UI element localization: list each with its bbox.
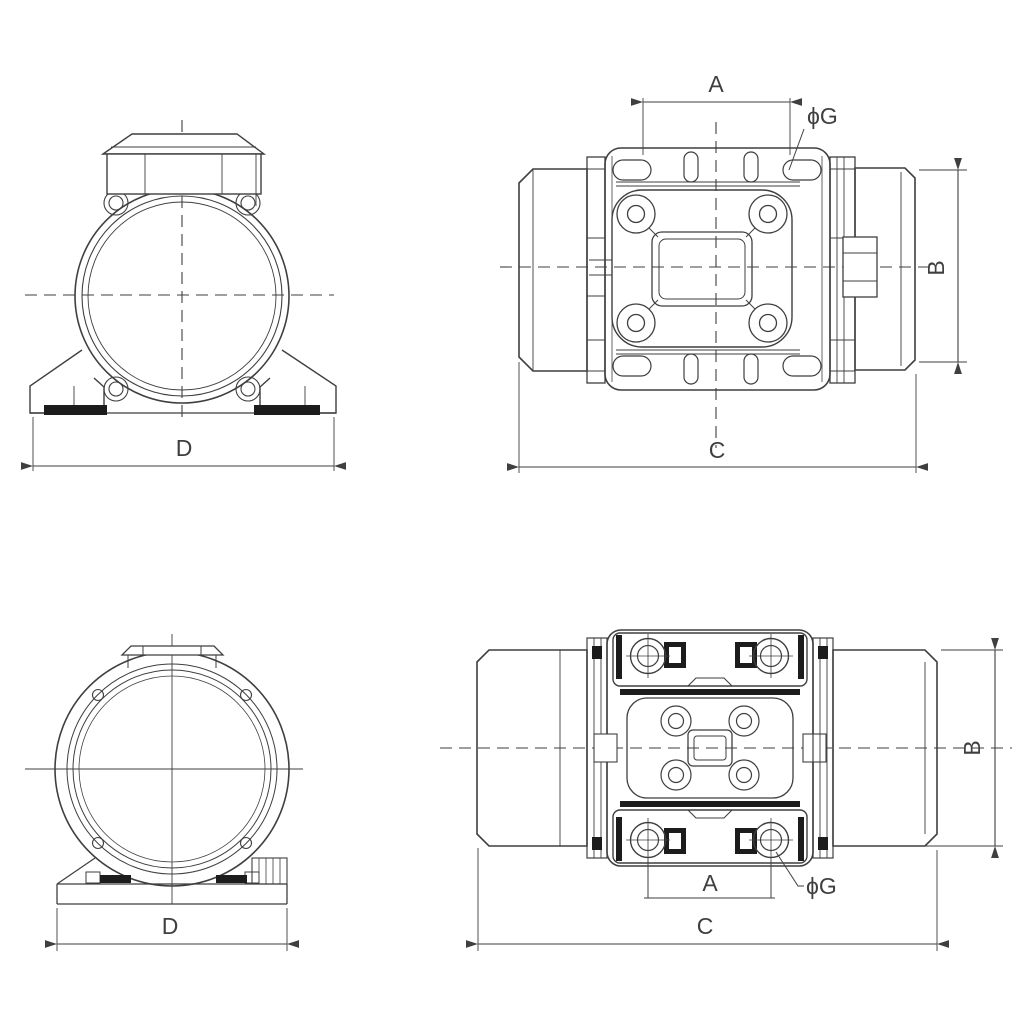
front-terminal-box-body — [107, 154, 261, 194]
top-corner-bolt-hole — [760, 206, 777, 223]
bottom-dim-c-label: C — [697, 913, 714, 939]
bottom-dim-b-label: B — [959, 740, 985, 755]
bottom-left-shaft-stub — [594, 734, 617, 762]
technical-drawing-canvas: D — [0, 0, 1024, 1024]
view-top — [500, 98, 967, 473]
top-left-end-cap — [519, 169, 587, 371]
bottom-gasket-bar-top — [620, 689, 800, 695]
bottom-foot-bolt-holes-top — [626, 634, 793, 678]
bottom-gasket-bar-bottom — [620, 801, 800, 807]
front-left-foot — [30, 350, 104, 413]
bottom-corner-bolt-hole — [669, 714, 684, 729]
bottom-top-foot-plate — [613, 633, 807, 686]
front-terminal-box — [103, 134, 264, 206]
top-corner-bolt-hole — [760, 315, 777, 332]
rear-right-rubber-pad — [216, 875, 247, 883]
drawing-svg: D — [0, 0, 1024, 1024]
top-center-window-inner — [659, 239, 745, 299]
bottom-right-shaft-stub — [803, 734, 826, 762]
top-mounting-slots — [613, 152, 821, 384]
front-feet — [30, 350, 336, 415]
top-dim-b-label: B — [923, 260, 949, 275]
bottom-corner-bolt-hole — [737, 714, 752, 729]
top-dim-c-label: C — [709, 437, 726, 463]
bottom-foot-bolt-holes-bottom — [626, 818, 793, 862]
bottom-left-end-cap — [477, 650, 587, 846]
rear-dim-d-label: D — [162, 913, 179, 939]
top-corner-bolt-hole — [628, 206, 645, 223]
top-left-flange — [587, 157, 605, 383]
rear-left-rubber-pad — [100, 875, 131, 883]
front-dim-d-label: D — [176, 435, 193, 461]
front-terminal-box-lid — [103, 134, 264, 154]
top-phi-g-label: ϕG — [807, 103, 838, 129]
top-center-window-outer — [652, 232, 752, 306]
front-right-rubber-pad — [254, 405, 320, 415]
front-left-rubber-pad — [44, 405, 107, 415]
front-right-foot — [260, 350, 336, 413]
bottom-corner-bolt-hole — [669, 768, 684, 783]
bottom-corner-bolt-hole — [737, 768, 752, 783]
view-front-end — [25, 120, 336, 471]
rear-hatched-foot — [252, 858, 287, 884]
view-bottom — [440, 630, 1012, 951]
bottom-dim-a-label: A — [702, 870, 718, 896]
top-center-frame — [612, 190, 792, 347]
top-cable-gland — [843, 237, 877, 297]
top-dim-a-label: A — [708, 71, 724, 97]
bottom-phi-g-label: ϕG — [806, 873, 837, 899]
view-rear-end — [25, 634, 303, 951]
top-corner-bolt-hole — [628, 315, 645, 332]
top-phi-g-leader — [789, 129, 804, 170]
